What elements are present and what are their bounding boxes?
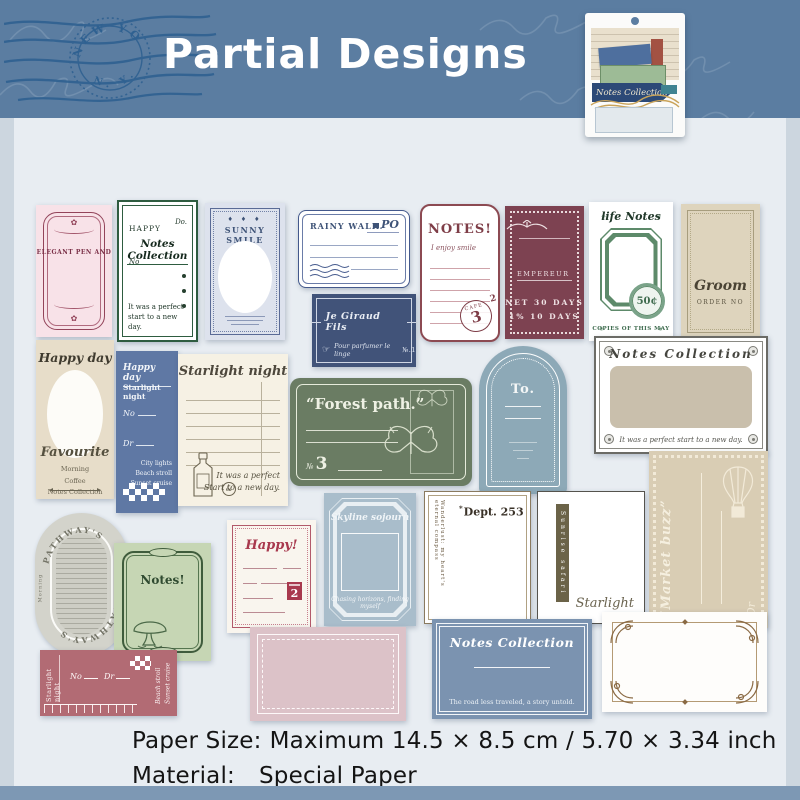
side-vertical-text: Wanderlust: my heart's eternal compass xyxy=(433,500,445,615)
product-showcase-page: { "header": { "title": "Partial Designs"… xyxy=(0,0,800,800)
card-to-arch: To. xyxy=(479,346,567,494)
card-footer-text: COPIES OF THIS MAY xyxy=(589,326,673,332)
item-list: Morning Coffee Notes Collection xyxy=(36,464,114,499)
favourite-script: Favourite xyxy=(36,445,114,460)
corner-flourish-icon xyxy=(608,680,634,706)
diamond-ornaments: ♦ ♦ ♦ xyxy=(205,216,285,223)
garland-icon xyxy=(54,300,94,309)
card-footer-text: It was a perfect start to a new day. xyxy=(128,302,187,332)
blank-oval xyxy=(218,241,272,313)
number-label: №.1 xyxy=(402,346,416,354)
mushroom-icon xyxy=(130,615,170,649)
postmark-arc-bottom: N. Y. xyxy=(92,67,139,90)
vertical-script: Beach stroll Sunset cruise xyxy=(154,654,173,704)
price-badge: 50¢ xyxy=(629,283,665,319)
card-happy-day: Happy day Favourite Morning Coffee Notes… xyxy=(36,340,114,499)
card-footer-text: Pour parfumer le linge xyxy=(334,342,398,358)
paper-size-label: Paper Size: xyxy=(132,728,262,754)
card-happy-exclaim: Happy! 2 xyxy=(227,520,316,633)
card-title: “Market buzz” xyxy=(659,465,674,618)
no-field: No xyxy=(70,672,98,681)
fine-print-lines xyxy=(219,313,271,328)
checkered-flag-icon xyxy=(130,656,151,670)
photo-frame-outline xyxy=(341,533,399,591)
card-title: Je Giraud Fils xyxy=(326,311,403,333)
po-logo: PO xyxy=(374,218,399,231)
card-title: Happy day xyxy=(36,350,114,365)
rose-icon: ✿ xyxy=(71,314,78,323)
card-title: Skyline sojourn xyxy=(324,513,416,523)
card-notes-red: NOTES! I enjoy smile CAFE 3 2 xyxy=(420,204,500,342)
package-paper-bottom xyxy=(595,107,673,133)
card-starlight-lined: Starlight night & It was a perfect Start… xyxy=(178,354,288,506)
card-empereur: EMPEREUR NET 30 DAYS 1% 10 DAYS xyxy=(505,206,584,339)
card-happy-notes: HAPPY Do. Notes Collection No It was a p… xyxy=(117,200,198,342)
card-title: To. xyxy=(479,382,567,397)
card-life-notes: ✳ ✳ life Notes 50¢ ✳ ✳ COPIES OF THIS MA… xyxy=(589,202,673,341)
blank-block xyxy=(610,366,752,428)
garland-icon xyxy=(54,225,94,234)
corner-flourish-icon xyxy=(608,618,634,644)
card-script-text: Starlight xyxy=(576,596,634,611)
card-giraud-fils: Je Giraud Fils ☞ Pour parfumer le linge … xyxy=(312,294,416,367)
page-title: Partial Designs xyxy=(163,30,528,78)
svg-text:N. Y.: N. Y. xyxy=(92,67,139,90)
package-paper-red xyxy=(651,39,663,67)
number-value: 3 xyxy=(316,454,328,474)
scroll-knot-icon xyxy=(149,548,177,557)
no-field: No xyxy=(129,258,139,266)
card-title: ELEGANT PEN AND xyxy=(36,249,112,256)
product-package-thumbnail: Notes Collection xyxy=(585,13,685,137)
flourish-icon xyxy=(505,220,549,232)
card-forest-path: “Forest path.” №3 xyxy=(290,378,472,486)
side-label-left: Morning xyxy=(37,573,43,602)
svg-text:PATHWAY'S: PATHWAY'S xyxy=(41,524,106,564)
card-elegant-pen: ✿ ELEGANT PEN AND ✿ xyxy=(36,205,112,337)
svg-text:PATHWAY'S: PATHWAY'S xyxy=(57,605,122,645)
center-motif xyxy=(682,699,688,705)
card-starlight-strip: Starlight night No Dr Beach stroll Sunse… xyxy=(40,650,177,716)
card-corner-label: Do. xyxy=(175,218,187,226)
card-title: Dept. 253 xyxy=(464,506,524,519)
card-subtitle: Starlight night xyxy=(123,383,178,401)
card-notes-green: Notes! xyxy=(114,543,211,661)
corner-flourish-icon xyxy=(735,680,761,706)
card-blue-notes-collection: Notes Collection The road less traveled,… xyxy=(432,619,592,719)
corner-flourish-icon xyxy=(735,618,761,644)
card-title: Groom xyxy=(681,278,760,294)
arc-text-bottom: PATHWAY'S xyxy=(57,605,122,645)
hot-air-balloon-icon xyxy=(720,465,756,523)
card-blue-happy-day: Happy day Starlight night No Dr City lig… xyxy=(116,351,178,513)
card-notes-collection-frame: Notes Collection It was a perfect start … xyxy=(594,336,768,454)
ruler-ticks xyxy=(44,704,137,713)
card-subtitle: ORDER NO xyxy=(681,299,760,306)
card-pink-frame xyxy=(250,627,406,721)
card-label: HAPPY xyxy=(129,224,161,233)
number-symbol: № xyxy=(306,462,314,471)
vertical-label: Sunrise safari xyxy=(556,504,569,602)
paper-size-value: Maximum 14.5 × 8.5 cm / 5.70 × 3.34 inch xyxy=(270,728,777,754)
card-title: Notes! xyxy=(114,573,211,587)
card-title: RAINY WALK. xyxy=(310,221,383,231)
card-dept-253: Wanderlust: my heart's eternal compass *… xyxy=(424,491,531,624)
dr-field: Dr xyxy=(104,672,130,681)
card-title: Happy! xyxy=(227,538,316,553)
card-ornate-white xyxy=(602,612,767,712)
card-footer-text: It was a perfect start to a new day. xyxy=(596,436,766,444)
card-subtitle: I enjoy smile xyxy=(431,244,476,252)
card-sunny-smile: ♦ ♦ ♦ SUNNY SMILE xyxy=(205,203,285,340)
card-label: EMPEREUR xyxy=(517,270,572,281)
card-title: life Notes xyxy=(589,210,673,223)
terms-line-2: 1% 10 DAYS xyxy=(505,312,584,321)
card-groom: Groom ORDER NO xyxy=(681,204,760,339)
card-skyline-sojourn: Skyline sojourn Chasing horizons, findin… xyxy=(324,493,416,626)
card-footer-text: It was a perfect Start to a new day. xyxy=(204,470,280,494)
card-rainy-walk: RAINY WALK. PO xyxy=(298,210,410,288)
number-badge: 2 xyxy=(287,582,302,600)
no-field: No xyxy=(123,409,156,418)
package-hang-hole xyxy=(631,17,639,25)
bottom-band xyxy=(0,786,800,800)
card-title: Notes Collection xyxy=(596,347,766,361)
arc-text-top: PATHWAY'S xyxy=(41,524,106,564)
checkered-flag-icon xyxy=(123,483,165,501)
butterfly-icon xyxy=(380,420,442,470)
dr-field: Dr xyxy=(123,439,154,448)
card-sunrise-safari: Sunrise safari Starlight xyxy=(537,491,645,624)
card-title: Notes Collection xyxy=(432,635,592,650)
paper-size-spec: Paper Size:Maximum 14.5 × 8.5 cm / 5.70 … xyxy=(132,728,777,754)
pointing-hand-icon: ☞ xyxy=(322,345,330,355)
fine-print-line xyxy=(519,238,570,239)
card-footer-text: The road less traveled, a story untold. xyxy=(432,698,592,706)
card-title: Starlight night xyxy=(178,364,288,379)
butterfly-icon xyxy=(414,386,450,416)
postmark-squiggle-icon xyxy=(309,263,351,279)
card-title: “Forest path.” xyxy=(306,395,424,413)
stamp-superscript: 2 xyxy=(489,293,497,304)
card-title: NOTES! xyxy=(422,222,498,237)
star-mark: * xyxy=(459,504,463,513)
arrow-rule xyxy=(50,490,100,491)
terms-line-1: NET 30 DAYS xyxy=(505,298,584,307)
card-market-buzz: “Market buzz” Dr xyxy=(649,451,768,628)
card-script-text: Chasing horizons, finding myself xyxy=(324,596,416,610)
